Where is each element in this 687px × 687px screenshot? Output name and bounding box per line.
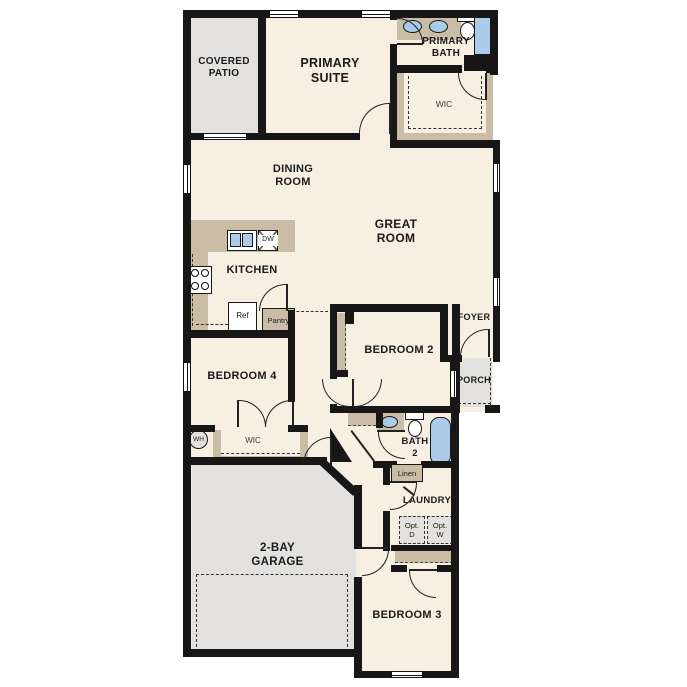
window — [361, 10, 391, 18]
room-label-porch: PORCH — [456, 374, 492, 386]
kitchen-cabinet-dash2 — [196, 324, 228, 325]
stove-icon — [188, 266, 212, 294]
dryer-label: Opt. D — [399, 518, 425, 542]
wall — [390, 65, 397, 148]
door-leaf — [389, 103, 391, 134]
room-label-primary-suite: PRIMARY SUITE — [280, 53, 380, 89]
room-label-wic-primary: WIC — [428, 98, 460, 110]
wall — [288, 310, 295, 402]
wall — [391, 545, 458, 551]
wall — [183, 330, 290, 338]
wall — [345, 312, 354, 324]
wall — [376, 410, 383, 428]
sliding-door — [203, 133, 247, 140]
door-leaf — [286, 284, 288, 311]
wall — [354, 671, 391, 678]
porch-dash-bottom — [458, 403, 491, 404]
water-heater-label: WH — [189, 430, 208, 449]
wall — [183, 10, 497, 18]
room-label-wic4: WIC — [238, 435, 268, 447]
wall — [354, 485, 362, 549]
bedroom3-closet-shelf — [395, 550, 453, 563]
door-leaf — [485, 73, 487, 100]
dishwasher-label: DW — [258, 235, 278, 246]
wall — [423, 671, 458, 678]
toilet-icon — [405, 412, 424, 420]
garage-door-dashed — [196, 574, 348, 652]
wall — [390, 140, 498, 148]
wall — [183, 649, 358, 657]
wic4-shelf-line — [221, 453, 300, 454]
room-label-bath2: BATH 2 — [398, 435, 432, 460]
wall — [486, 65, 498, 73]
room-label-primary-bath: PRIMARY BATH — [414, 34, 478, 62]
wall — [485, 405, 500, 413]
refrigerator-label: Ref — [228, 310, 257, 322]
door-leaf — [292, 400, 294, 427]
wall — [330, 304, 448, 312]
sink-basin — [230, 233, 241, 247]
room-label-bedroom4: BEDROOM 4 — [198, 370, 286, 384]
window — [269, 10, 299, 18]
floor-plan: DW Ref Pantry Opt. D Opt. W WH — [0, 0, 687, 687]
window — [493, 277, 500, 307]
room-label-laundry: LAUNDRY — [398, 494, 456, 507]
room-label-dining: DINING ROOM — [260, 160, 326, 192]
window — [493, 163, 500, 193]
wall — [391, 565, 407, 572]
sink-basin — [242, 233, 253, 247]
window — [183, 362, 191, 392]
wall — [330, 304, 337, 379]
wall — [354, 577, 362, 678]
room-label-covered-patio: COVERED PATIO — [190, 52, 258, 84]
sink-icon — [429, 20, 448, 33]
wall — [183, 425, 215, 432]
wall — [390, 10, 397, 20]
tub-icon — [430, 417, 451, 465]
door-leaf — [488, 329, 490, 357]
room-label-great-room: GREAT ROOM — [362, 214, 430, 248]
sink-icon — [381, 416, 398, 428]
room-label-kitchen: KITCHEN — [218, 264, 286, 278]
wall — [451, 406, 459, 678]
room-label-garage: 2-BAY GARAGE — [240, 540, 315, 572]
wall — [332, 370, 348, 377]
hall-closet-shelf — [348, 411, 376, 426]
kitchen-sink-icon — [227, 230, 257, 251]
room-label-bedroom3: BEDROOM 3 — [362, 609, 452, 623]
window — [183, 164, 191, 194]
window — [391, 671, 423, 678]
wall — [383, 511, 390, 551]
wall — [258, 10, 266, 140]
wall — [390, 65, 462, 73]
wall — [330, 406, 460, 413]
room-label-foyer: FOYER — [454, 311, 494, 323]
wall — [383, 461, 390, 485]
washer-label: Opt. W — [427, 518, 453, 542]
room-label-bedroom2: BEDROOM 2 — [352, 344, 446, 358]
linen-label: Linen — [391, 467, 423, 479]
